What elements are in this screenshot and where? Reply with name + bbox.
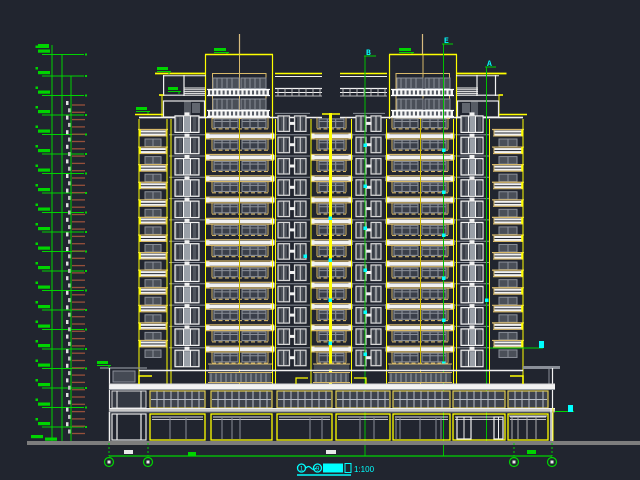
svg-text:1: 1 (300, 466, 304, 473)
svg-text:A: A (487, 60, 492, 69)
svg-text:B: B (366, 49, 371, 58)
svg-text:1:100: 1:100 (354, 465, 375, 474)
svg-text:9: 9 (316, 466, 320, 473)
svg-text:E: E (444, 37, 449, 46)
